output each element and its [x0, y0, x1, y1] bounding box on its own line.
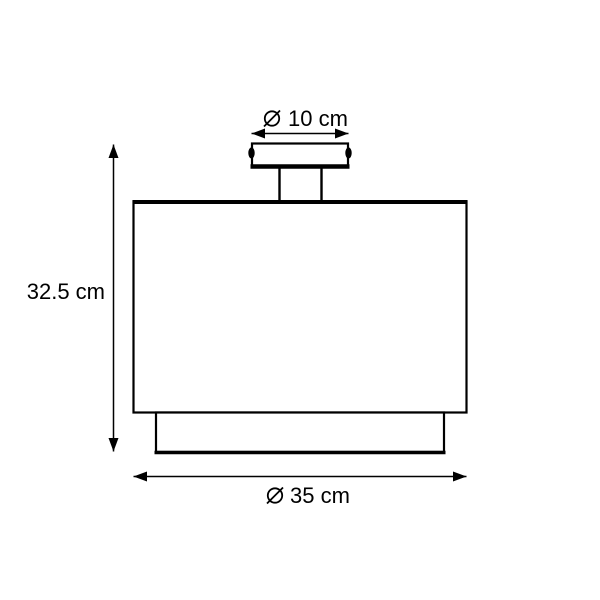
lamp-stem [280, 166, 322, 202]
dimension-diagram: 10 cm 32.5 cm 35 cm [0, 0, 600, 600]
shade-diameter-label: 35 cm [290, 483, 350, 508]
canopy-diameter-label: 10 cm [288, 106, 348, 131]
canopy-clip-left [248, 147, 254, 158]
lamp-canopy [252, 144, 348, 167]
height-label: 32.5 cm [27, 279, 105, 304]
lamp-shade [134, 202, 467, 413]
lamp-inner-diffuser [156, 413, 444, 453]
canopy-clip-right [345, 147, 351, 158]
lamp-technical-drawing: 10 cm 32.5 cm 35 cm [0, 0, 600, 600]
